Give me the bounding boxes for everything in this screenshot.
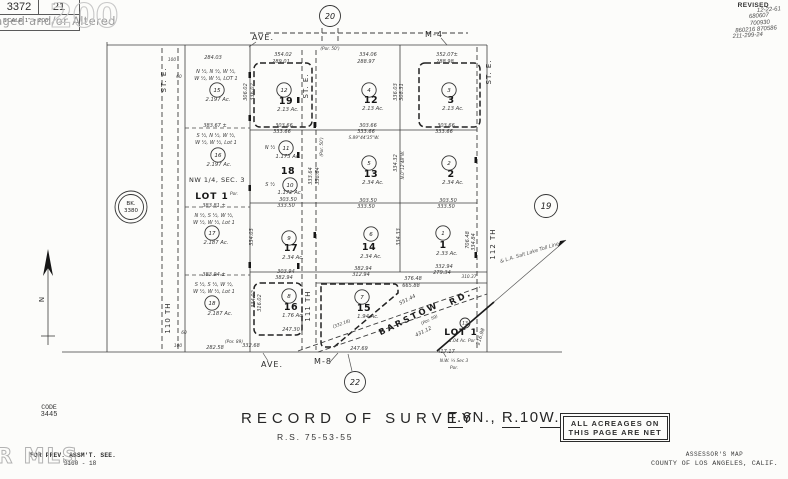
- parcel-circle: 4: [362, 83, 376, 97]
- map-label: 1.173 Ac.: [275, 154, 300, 160]
- parcel-circle: 6: [364, 227, 378, 241]
- map-label: N ½, N ½, W ½,: [196, 68, 236, 75]
- map-label: 279.34: [433, 270, 451, 276]
- map-label: W ½, W ½, LOT 1: [194, 75, 238, 82]
- map-label: 333.50: [277, 203, 295, 209]
- map-label: 376.48: [404, 276, 422, 282]
- map-label: N.0°12'48"W.: [400, 151, 406, 180]
- map-label: S ½, N ½, W ½,: [196, 132, 235, 139]
- map-label: N.W. ¼ Sec 3: [440, 358, 469, 364]
- map-label: NW 1/4, SEC. 3: [189, 176, 245, 184]
- map-label: 303.50: [279, 197, 297, 203]
- parcel-circle-number: 20: [325, 12, 335, 21]
- map-label: 354.02: [274, 52, 292, 58]
- title-block: 3372 21 SCALE 1" = 200': [0, 0, 80, 31]
- map-scale: SCALE 1" = 200': [0, 15, 79, 24]
- parcel-circle: 8: [282, 289, 296, 303]
- map-label: 706.48: [465, 231, 471, 249]
- parcel-circle: 5: [362, 156, 376, 170]
- map-label: M-4: [425, 30, 443, 39]
- map-label: 551.44: [398, 294, 416, 307]
- parcel-circle: 13: [460, 318, 470, 328]
- acreage-note-inner: ALL ACREAGES ON THIS PAGE ARE NET: [563, 416, 668, 440]
- map-label: S ½, S ½, W ½,: [195, 281, 234, 288]
- parcel-circle-number: 12: [281, 88, 288, 94]
- parcel-circle: 3: [442, 83, 456, 97]
- map-label: 2.34 Ac.: [282, 255, 304, 261]
- map-label: 2.13 Ac.: [442, 106, 464, 112]
- map-label: 2.13 Ac.: [277, 107, 299, 113]
- map-label: 382.94: [275, 275, 293, 281]
- map-labels: AVE.M-4AVE.M-8ST. E.110 THST. E.111 THST…: [38, 30, 560, 371]
- map-label: LOT 1: [444, 328, 478, 338]
- assessor-map-label: ASSESSOR'S MAP: [651, 451, 778, 458]
- map-label: 1: [439, 240, 446, 251]
- parcel-circle-number: 9: [287, 236, 291, 242]
- map-label: 247.30: [282, 327, 300, 333]
- map-label: N ½, S ½, W ½,: [194, 212, 233, 219]
- map-label: RD.: [448, 288, 474, 308]
- map-label: 19: [279, 96, 293, 107]
- record-of-survey-reference: R.S. 75-53-55: [277, 432, 353, 442]
- township-range: T.6N., R.10W.: [448, 409, 560, 426]
- township-part: 10: [520, 409, 540, 426]
- acreage-note-line1: ALL ACREAGES ON: [569, 419, 662, 428]
- map-label: S ½: [265, 181, 275, 188]
- parcel-circle: 2: [442, 156, 456, 170]
- parcel-circle: 11: [279, 141, 293, 155]
- map-label: 334.02: [251, 290, 257, 308]
- map-label: 334.84: [471, 233, 477, 251]
- revision-block: REVISED 12-22-61680607700930860216 87058…: [703, 2, 785, 40]
- sheet-ref-circle: 22: [345, 372, 366, 393]
- map-label: 1.172 Ac.: [277, 190, 302, 196]
- tax-code-block: CODE 3445: [34, 404, 64, 419]
- map-label: 336.02: [250, 83, 256, 101]
- map-label: 13: [364, 169, 378, 180]
- map-label: 316.02: [257, 294, 263, 312]
- map-label: 2.34 Ac.: [362, 180, 384, 186]
- map-book-number: 3372: [0, 0, 39, 14]
- map-label: 60: [176, 74, 182, 80]
- map-label: 15: [357, 303, 371, 314]
- map-label: 14: [362, 242, 376, 253]
- watermarks: Photo Virtually Staged and/or Altered 20…: [0, 0, 118, 468]
- parcel-circle: 7: [355, 290, 369, 304]
- sheet-ref-circle: 19: [535, 195, 558, 218]
- book-page-row: 3372 21: [0, 0, 79, 15]
- map-label: 303.66: [275, 123, 293, 129]
- map-label: 306.02: [243, 83, 249, 101]
- map-label: N: [38, 296, 46, 302]
- map-label: 216.98: [475, 327, 486, 345]
- sheet-ref-circle: 20: [320, 6, 341, 27]
- map-label: 247.69: [350, 346, 368, 352]
- railroad-line: [437, 240, 566, 351]
- parcel-circle-number: 17: [209, 231, 216, 237]
- township-part: T.: [448, 409, 463, 428]
- parcel-circle: 17: [205, 226, 219, 240]
- map-label: 310.37: [461, 274, 476, 280]
- map-label: 110 TH: [164, 302, 172, 333]
- map-label: 312.94: [352, 272, 370, 278]
- map-label: 1.76 Ac.: [282, 313, 304, 319]
- parcel-circle-number: 1: [441, 231, 445, 237]
- map-label: 3: [447, 95, 454, 106]
- parcel-circles: 1516171812111098456732113202219: [205, 6, 558, 393]
- map-label: 333.50: [437, 204, 455, 210]
- map-label: 112 TH: [489, 228, 497, 259]
- record-of-survey-title: RECORD OF SURVEY: [241, 410, 477, 427]
- map-label: N ½: [265, 144, 275, 151]
- road-dashed-lines: [162, 28, 477, 350]
- assessor-map-page: 3372 21 SCALE 1" = 200' REVISED 12-22-61…: [0, 0, 788, 479]
- leader-lines: [249, 38, 447, 371]
- map-label: 18: [281, 166, 295, 177]
- map-label: ST. E.: [485, 60, 493, 85]
- map-label: 417.17: [437, 349, 455, 355]
- map-label: 2.197 Ac.: [206, 162, 231, 168]
- map-label: (Por. 89): [225, 339, 243, 345]
- map-label: 16: [284, 302, 298, 313]
- map-label: 303.94: [277, 269, 295, 275]
- map-label: 336.03: [393, 83, 399, 101]
- parcel-circle: 18: [205, 296, 219, 310]
- map-label: 303.66: [437, 123, 455, 129]
- parcel-circle-number: 7: [360, 295, 364, 301]
- book-reference-circle: BK. 3380: [115, 191, 147, 223]
- county-label: COUNTY OF LOS ANGELES, CALIF.: [651, 460, 778, 468]
- revision-entries: 12-22-61680607700930860216 870586211-299…: [703, 9, 785, 40]
- map-label: 289.01: [272, 59, 290, 65]
- map-label: 334.03: [249, 228, 255, 246]
- map-label: 2: [447, 169, 454, 180]
- parcel-circle-number: 10: [287, 183, 294, 189]
- assessor-credit-block: ASSESSOR'S MAP COUNTY OF LOS ANGELES, CA…: [651, 451, 778, 468]
- township-part: R.: [502, 409, 520, 428]
- map-label: 333.66: [435, 129, 453, 135]
- acreage-note-box: ALL ACREAGES ON THIS PAGE ARE NET: [560, 413, 670, 442]
- map-label: (Por. 50'): [320, 46, 340, 52]
- map-label: W ½, W ½, Lot 1: [193, 219, 235, 226]
- map-label: (332.18): [332, 318, 352, 330]
- map-label: 383.67 ±: [203, 123, 226, 129]
- map-label: S.89°44'35"W.: [348, 135, 379, 141]
- parcel-circle-number: 13: [462, 321, 468, 327]
- map-label: 333.66: [273, 129, 291, 135]
- parcel-circle-number: 8: [287, 294, 291, 300]
- map-label: M-8: [314, 357, 332, 366]
- parcel-circle: 1: [436, 226, 450, 240]
- map-label: 2.197 Ac.: [205, 97, 230, 103]
- parcel-circle: 16: [211, 148, 225, 162]
- previous-assessment-note: FOR PREV. ASSM'T. SEE. 3160 - 18: [30, 452, 130, 467]
- map-label: 284.03: [204, 55, 222, 61]
- map-label: 1.04 Ac. Por: [449, 338, 475, 344]
- map-label: 382.94: [354, 266, 372, 272]
- map-label: 303.50: [359, 198, 377, 204]
- map-label: 383.94 ±: [202, 272, 225, 278]
- map-label: (Por. 59): [420, 313, 439, 326]
- map-label: & L.A. Salt Lake Toll Line: [499, 241, 560, 265]
- map-label: 100: [168, 57, 176, 63]
- parcel-circle: 12: [277, 83, 291, 97]
- previous-assessment-text: FOR PREV. ASSM'T. SEE.: [30, 452, 130, 459]
- parcel-circle-number: 19: [541, 202, 552, 212]
- parcel-circle-number: 16: [215, 153, 222, 159]
- code-label: CODE: [34, 404, 64, 411]
- parcel-circle-number: 15: [214, 88, 221, 94]
- map-label: 303.66: [359, 123, 377, 129]
- compass-north-arrow: [41, 249, 55, 345]
- map-label: 332.68: [242, 343, 260, 349]
- map-page-number: 21: [39, 0, 79, 14]
- previous-assessment-reference: 3160 - 18: [30, 460, 130, 467]
- map-label: 334.32: [393, 154, 399, 172]
- map-label: 383.81 ±: [202, 203, 225, 209]
- map-label: W ½, W ½, Lot 1: [193, 288, 235, 295]
- map-label: (Por. 50'): [319, 137, 325, 157]
- map-label: 338.64: [315, 167, 321, 185]
- map-label: 665.88: [402, 283, 420, 289]
- parcel-circle: 9: [282, 231, 296, 245]
- map-label: 282.58: [206, 345, 224, 351]
- parcel-circle-number: 3: [447, 88, 451, 94]
- map-label: 2.34 Ac.: [442, 180, 464, 186]
- map-label: 1.94 Ac.: [357, 314, 379, 320]
- map-label: 308.31: [399, 83, 405, 101]
- map-label: 2.34 Ac.: [360, 254, 382, 260]
- map-label: 60: [181, 330, 187, 336]
- book-reference-line1: BK.: [126, 201, 135, 207]
- map-label: BARSTOW: [377, 300, 440, 338]
- map-label: 303.50: [439, 198, 457, 204]
- parcel-circle: 10: [283, 178, 297, 192]
- parcel-circle-number: 11: [283, 146, 290, 152]
- book-reference-line2: 3380: [124, 208, 138, 214]
- parcel-circle-number: 2: [447, 161, 451, 167]
- map-label: 332.94: [435, 264, 453, 270]
- map-label: ST. E.: [302, 74, 310, 99]
- map-label: 333.50: [357, 204, 375, 210]
- township-part: 6N.,: [463, 409, 502, 426]
- parcel-outline-heavy-dashed: [254, 63, 480, 347]
- map-label: Por.: [230, 191, 238, 197]
- map-label: 288.98: [436, 59, 454, 65]
- map-label: 2.187 Ac.: [203, 240, 228, 246]
- map-label: 333.64: [308, 167, 314, 185]
- map-boundary-lines: [62, 42, 562, 352]
- parcel-circle-number: 5: [367, 161, 371, 167]
- dedication-ticks: [249, 72, 478, 269]
- parcel-circle-number: 18: [209, 301, 216, 307]
- map-label: 333.66: [357, 129, 375, 135]
- parcel-circle: 15: [210, 83, 224, 97]
- map-label: 2.33 Ac.: [436, 251, 458, 257]
- map-svg: BK. 3380 1516171812111098456732113202219…: [0, 0, 788, 479]
- map-label: AVE.: [252, 33, 274, 42]
- parcel-circle-number: 22: [350, 378, 360, 387]
- barstow-road-lines: [298, 287, 487, 352]
- parcel-circle-number: 6: [369, 232, 373, 238]
- map-label: AVE.: [261, 360, 283, 369]
- map-label: 100: [174, 343, 182, 349]
- map-label: W ½, W ½, Lot 1: [195, 139, 237, 146]
- map-label: 17: [284, 243, 298, 254]
- map-label: 431.12: [414, 326, 432, 339]
- map-label: Por.: [450, 365, 458, 371]
- map-label: 2.13 Ac.: [362, 106, 384, 112]
- map-label: 288.97: [357, 59, 375, 65]
- code-value: 3445: [34, 411, 64, 419]
- map-label: 12: [364, 95, 378, 106]
- township-part: W.: [540, 409, 561, 428]
- map-label: 334.06: [359, 52, 377, 58]
- map-label: ST. E.: [160, 68, 168, 93]
- map-label: 352.07±: [436, 52, 458, 58]
- map-label: 2.187 Ac.: [207, 311, 232, 317]
- map-label: 334.33: [396, 228, 402, 246]
- map-label: 111 TH: [304, 290, 312, 321]
- parcel-circle-number: 4: [367, 88, 371, 94]
- map-label: LOT 1: [195, 192, 229, 202]
- acreage-note-line2: THIS PAGE ARE NET: [569, 428, 662, 437]
